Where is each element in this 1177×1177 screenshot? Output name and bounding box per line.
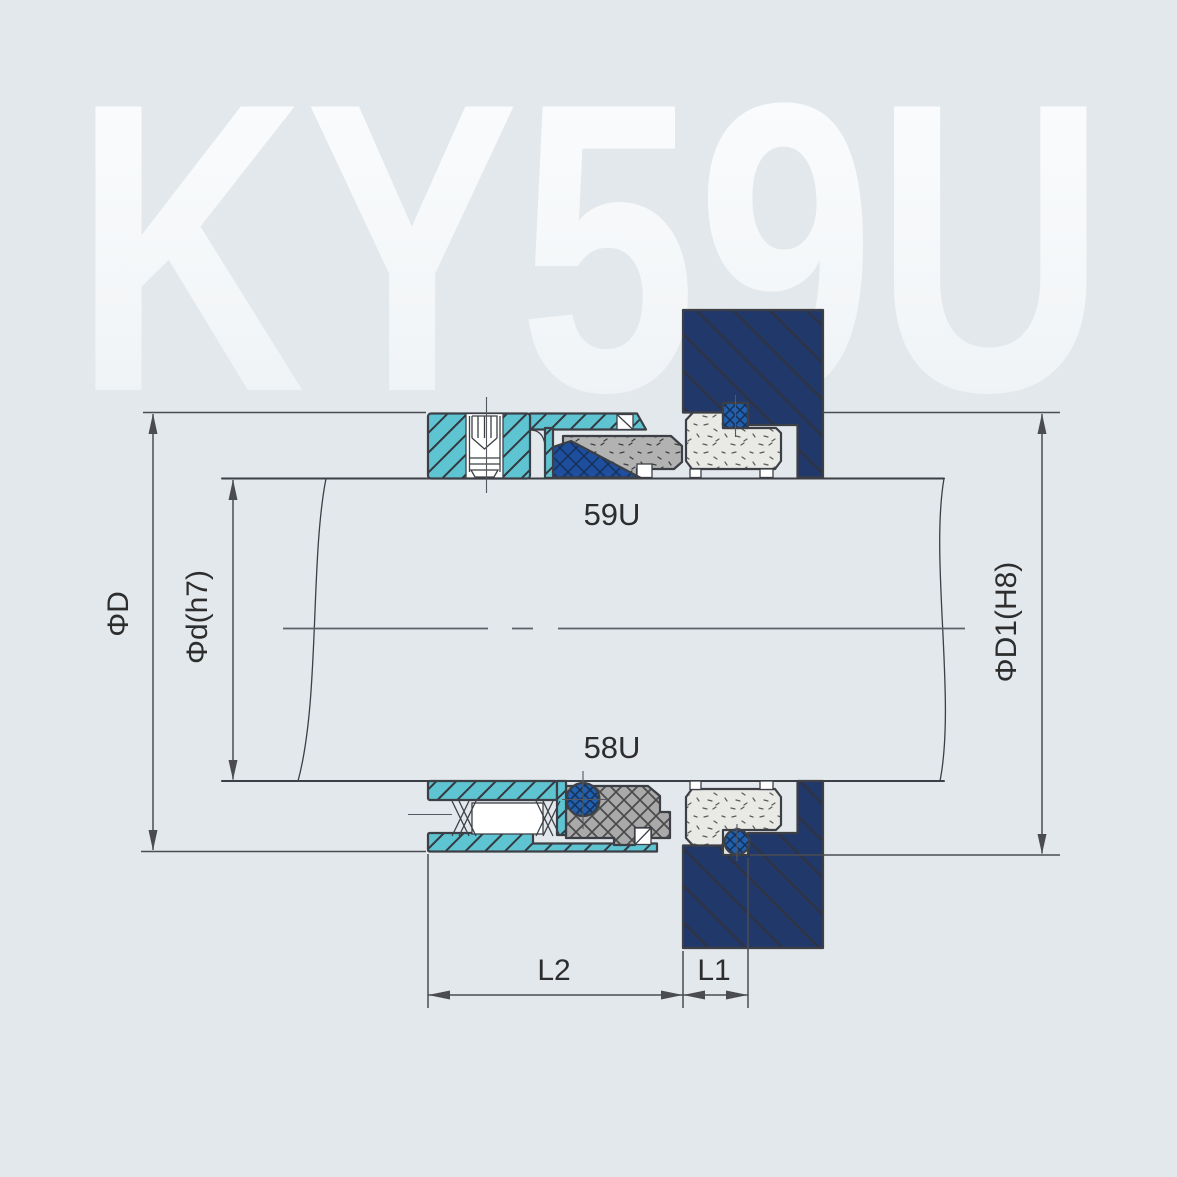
- seat-foot: [690, 781, 701, 790]
- spring-barrel: [472, 803, 543, 834]
- dim-label-bore-diameter: ΦD1(H8): [990, 562, 1023, 683]
- retainer-band-lower: [428, 781, 557, 800]
- retainer-strip-lower: [557, 781, 566, 835]
- seat-foot: [690, 469, 701, 478]
- drawing-canvas: KY59U: [0, 0, 1177, 1177]
- watermark: KY59U: [74, 18, 1106, 478]
- dim-label-seat-length: L1: [697, 954, 730, 987]
- label-58u: 58U: [584, 730, 641, 765]
- seat-foot: [760, 781, 773, 790]
- label-59u: 59U: [584, 497, 641, 532]
- face-lip: [637, 464, 652, 478]
- retainer-strip-upper: [545, 428, 553, 478]
- seal-cross-section-drawing: KY59U: [0, 0, 1177, 1177]
- dim-label-shaft-diameter: Φd(h7): [181, 570, 214, 664]
- dim-label-outer-diameter: ΦD: [102, 591, 135, 637]
- seat-foot: [760, 469, 773, 478]
- dim-label-working-length: L2: [537, 954, 570, 987]
